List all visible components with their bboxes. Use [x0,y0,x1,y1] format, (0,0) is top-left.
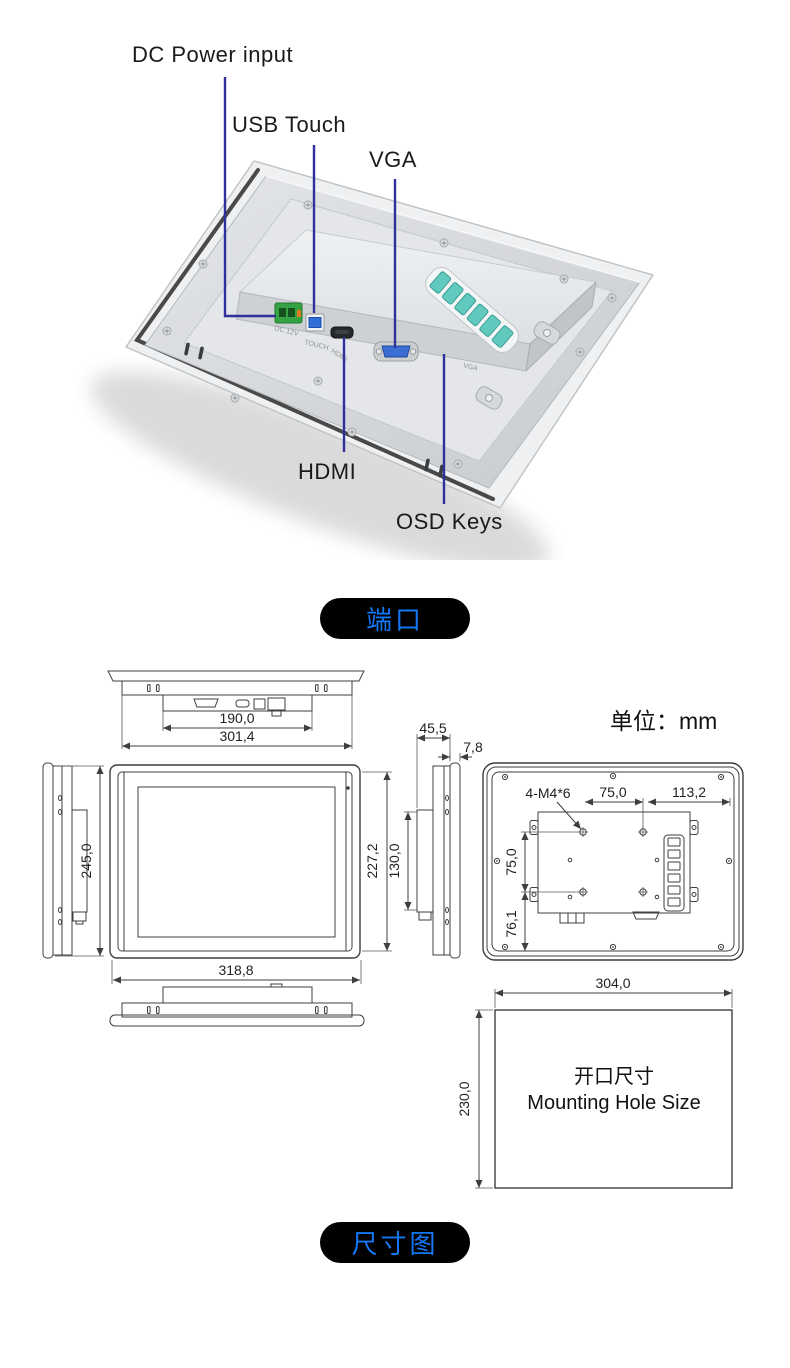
mounting-title-cn: 开口尺寸 [574,1065,654,1088]
page: DC 12V TOUCH HDMI VGA DC Power inpu [0,0,790,1368]
dim-front-width: 318,8 [218,962,253,978]
dim-vesa-pitch-v: 75,0 [503,848,519,875]
dim-side-height: 245,0 [78,843,94,878]
ports-section-badge: 端口 [320,598,470,639]
dim-bezel-depth: 7,8 [463,739,483,755]
hdmi-port [331,327,353,338]
dim-vesa-screws: 4-M4*6 [525,785,570,801]
dim-top-outer-width: 301,4 [219,728,254,744]
dimension-drawings: 190,0 301,4 245,0 [0,655,790,1205]
dim-edge-offset: 113,2 [672,784,706,800]
dim-vesa-pitch-h: 75,0 [599,784,626,800]
dimensions-section-badge: 尺寸图 [320,1222,470,1263]
mounting-hole-drawing: 304,0 230,0 开口尺寸 Mounting Hole Size [456,975,732,1188]
usb-touch-label: USB Touch [232,112,346,138]
vesa-holes [578,827,648,897]
dim-bottom-offset: 76,1 [503,910,519,937]
dim-total-depth: 45,5 [419,720,446,736]
device-rear-photo: DC 12V TOUCH HDMI VGA [0,0,790,560]
dim-front-body-height: 227,2 [364,843,380,878]
rear-view-drawing: 4-M4*6 75,0 113,2 75,0 76,1 [483,763,743,960]
usb-touch-port [306,314,324,331]
dim-mount-height: 230,0 [456,1081,472,1116]
top-view-drawing: 190,0 301,4 [108,671,364,749]
side-view-right-drawing: 45,5 7,8 130,0 [386,720,483,958]
dim-top-inner-width: 190,0 [219,710,254,726]
dc-power-connector [275,303,302,323]
osd-keys-label: OSD Keys [396,509,503,535]
side-view-left-drawing: 245,0 [43,763,104,958]
dim-bracket-height: 130,0 [386,843,402,878]
mounting-title-en: Mounting Hole Size [527,1092,700,1114]
hdmi-label: HDMI [298,459,356,485]
dc-power-label: DC Power input [132,42,293,68]
bottom-view-drawing [110,984,364,1026]
vga-label: VGA [369,147,417,173]
dim-mount-width: 304,0 [595,975,630,991]
front-view-drawing: 318,8 227,2 [110,765,392,984]
rear-osd-strip [664,835,684,911]
